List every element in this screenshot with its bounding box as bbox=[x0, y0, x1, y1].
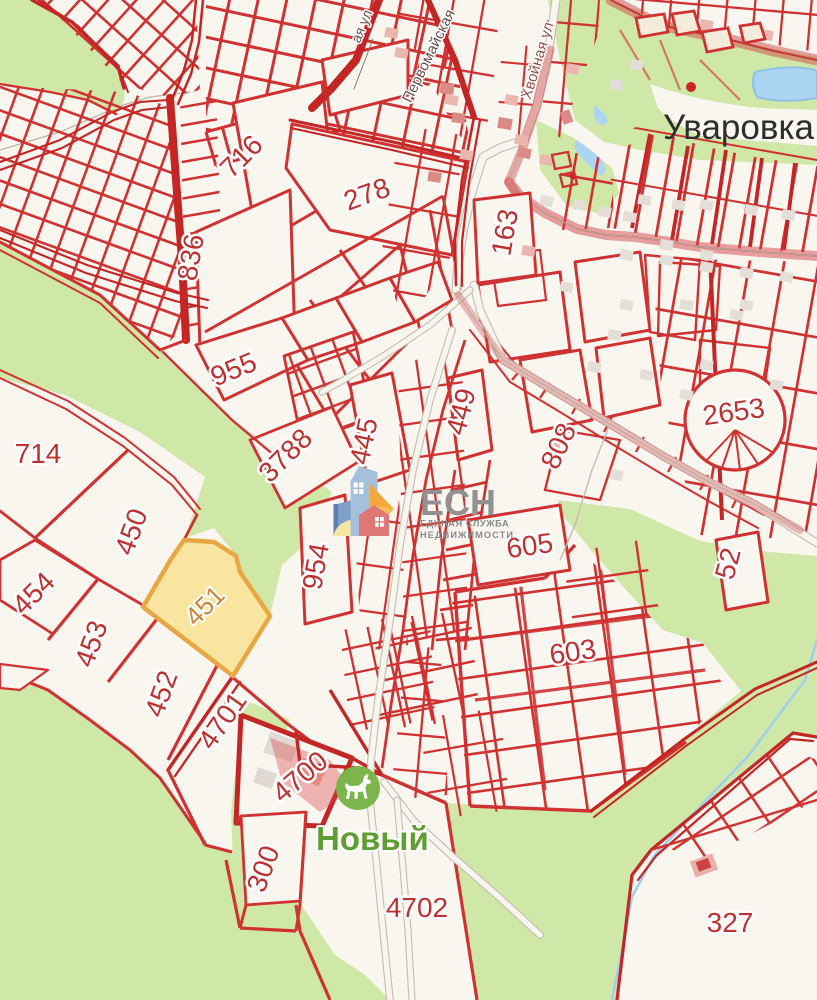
svg-text:714: 714 bbox=[15, 438, 62, 469]
svg-text:Уваровка: Уваровка bbox=[663, 108, 815, 147]
svg-text:ЕСН: ЕСН bbox=[420, 482, 496, 523]
svg-text:327: 327 bbox=[707, 907, 754, 938]
svg-text:Новый: Новый bbox=[316, 820, 429, 857]
svg-text:4702: 4702 bbox=[386, 892, 448, 923]
svg-text:603: 603 bbox=[547, 633, 598, 670]
svg-text:ЕДИНАЯ СЛУЖБА: ЕДИНАЯ СЛУЖБА bbox=[420, 519, 509, 529]
svg-text:НЕДВИЖИМОСТИ: НЕДВИЖИМОСТИ bbox=[420, 530, 514, 540]
